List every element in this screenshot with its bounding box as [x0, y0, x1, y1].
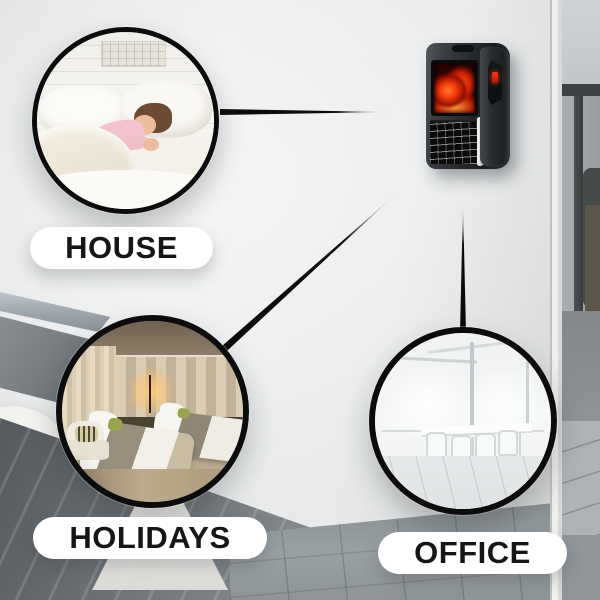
holidays-label: HOLIDAYS: [69, 520, 230, 556]
bed-sheet: [37, 170, 214, 209]
office-label-pill: OFFICE: [378, 532, 567, 574]
glass-lower-pane: [562, 311, 600, 421]
lamp-stem: [149, 375, 151, 413]
house-label: HOUSE: [65, 230, 178, 266]
hall-tile-seams: [562, 421, 600, 535]
green-accent-pillow: [177, 408, 190, 420]
heater-air-grille: [430, 120, 478, 164]
white-chair: [498, 430, 517, 456]
green-accent-pillow: [107, 417, 123, 432]
background-floor-wedge: [585, 205, 600, 311]
door-handle-post: [574, 96, 583, 311]
window-panel: [101, 41, 166, 68]
glass-partition: [562, 0, 600, 600]
child-hand: [143, 138, 159, 150]
wall-heater: [426, 43, 510, 169]
window-mullion: [526, 349, 529, 432]
heater-handle-notch: [452, 45, 474, 52]
glass-upper-pane: [562, 0, 600, 84]
holidays-label-pill: HOLIDAYS: [33, 517, 267, 559]
window-mullion: [470, 342, 474, 435]
door-handle-bar: [562, 84, 600, 96]
door-frame: [550, 0, 562, 600]
office-photo-circle: [369, 327, 557, 515]
holidays-photo-circle: [56, 315, 249, 508]
house-label-pill: HOUSE: [30, 227, 213, 269]
hall-floor-bottom: [562, 535, 600, 600]
heater-flame-display: [431, 60, 478, 116]
office-floor-seams: [375, 456, 551, 509]
heater-power-switch: [492, 72, 498, 83]
promo-image: HOUSE HOLIDAYS: [0, 0, 600, 600]
corner-shadow: [56, 455, 134, 508]
office-label: OFFICE: [414, 535, 531, 571]
striped-cushion: [75, 426, 99, 442]
house-photo-circle: [32, 27, 219, 214]
